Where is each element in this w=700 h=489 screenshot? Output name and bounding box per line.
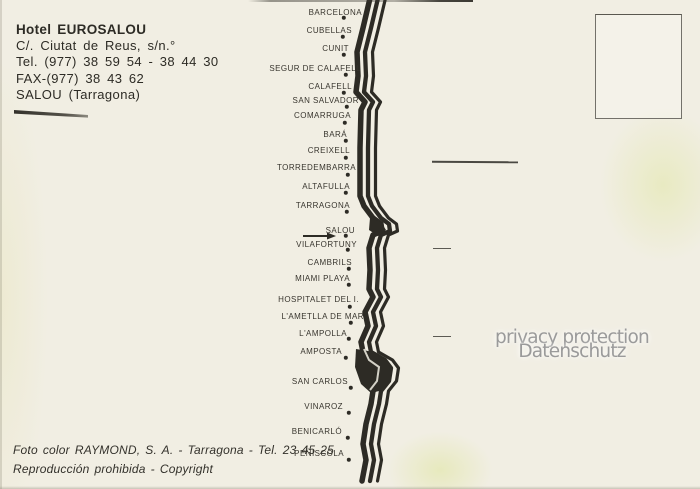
- map-town-dot: [341, 35, 345, 39]
- salou-cape-blob: [369, 218, 386, 236]
- address-line-2: [433, 248, 451, 249]
- photo-credit: Foto color RAYMOND, S. A. - Tarragona - …: [13, 441, 334, 460]
- map-town-dot: [344, 234, 348, 238]
- map-town-label: ALTAFULLA: [302, 183, 350, 191]
- map-town-label: BARÁ: [323, 131, 347, 139]
- map-town-dot: [343, 121, 347, 125]
- postcard-back: Hotel EUROSALOU C/. Ciutat de Reus, s/n.…: [0, 0, 700, 489]
- map-town-label: CREIXELL: [308, 147, 350, 155]
- hotel-info-block: Hotel EUROSALOU C/. Ciutat de Reus, s/n.…: [16, 21, 219, 104]
- delta-white-channel: [364, 349, 379, 390]
- map-town-dot: [344, 156, 348, 160]
- hotel-city: SALOU (Tarragona): [16, 87, 219, 103]
- map-town-dot: [348, 305, 352, 309]
- hotel-address: C/. Ciutat de Reus, s/n.°: [16, 38, 219, 54]
- address-line-1: [432, 161, 518, 163]
- map-town-dot: [344, 73, 348, 77]
- map-town-label: CAMBRILS: [308, 259, 353, 267]
- address-line-3: [433, 336, 451, 337]
- printer-credits: Foto color RAYMOND, S. A. - Tarragona - …: [13, 441, 334, 478]
- map-town-label: SEGUR DE CALAFELL: [269, 65, 361, 73]
- map-town-dot: [342, 53, 346, 57]
- map-town-label: CUBELLAS: [307, 27, 352, 35]
- map-town-label: SAN SALVADOR: [293, 97, 359, 105]
- copyright-notice: Reproducción prohibida - Copyright: [13, 460, 334, 479]
- map-town-label: HOSPITALET DEL I.: [278, 296, 359, 304]
- map-town-label: COMARRUGA: [294, 112, 351, 120]
- map-town-dot: [346, 173, 350, 177]
- map-town-dot: [342, 91, 346, 95]
- map-town-dot: [349, 386, 353, 390]
- map-town-dot: [344, 191, 348, 195]
- hotel-fax: FAX-(977) 38 43 62: [16, 71, 219, 87]
- map-town-dot: [347, 458, 351, 462]
- map-town-label: TARRAGONA: [296, 202, 350, 210]
- map-town-label: TORREDEMBARRA: [277, 164, 356, 172]
- privacy-watermark: privacy protection Datenschutz: [488, 331, 656, 358]
- scan-edge-left: [0, 0, 2, 489]
- map-town-label: CUNIT: [322, 45, 349, 53]
- coast-bands: [356, 0, 399, 481]
- map-town-dot: [346, 248, 350, 252]
- map-town-dot: [344, 356, 348, 360]
- stamp-box: [595, 14, 682, 119]
- map-town-dot: [342, 16, 346, 20]
- map-town-label: BENICARLÓ: [292, 428, 342, 436]
- scan-edge-top: [248, 0, 473, 2]
- map-town-label: L'AMPOLLA: [299, 330, 347, 338]
- map-town-label: CALAFELL: [308, 83, 352, 91]
- map-town-dot: [347, 337, 351, 341]
- coast-band-outer: [372, 0, 399, 481]
- coast-band-middle: [364, 0, 391, 481]
- map-town-label: SAN CARLOS: [292, 378, 348, 386]
- map-town-label: VINAROZ: [304, 403, 343, 411]
- map-town-dot: [349, 321, 353, 325]
- map-town-dot: [345, 105, 349, 109]
- map-town-dot: [347, 267, 351, 271]
- map-town-label: L'AMETLLA DE MAR: [281, 313, 364, 321]
- map-town-label: SALOU: [326, 227, 355, 235]
- map-town-label: MIAMI PLAYA: [295, 275, 350, 283]
- map-town-dot: [347, 411, 351, 415]
- hotel-phone: Tel. (977) 38 59 54 - 38 44 30: [16, 54, 219, 70]
- map-town-dot: [344, 139, 348, 143]
- map-town-label: BARCELONA: [309, 9, 362, 17]
- map-town-label: AMPOSTA: [300, 348, 342, 356]
- hotel-name: Hotel EUROSALOU: [16, 21, 219, 38]
- map-town-dot: [345, 210, 349, 214]
- map-town-dot: [346, 436, 350, 440]
- underline-pen-stroke: [14, 110, 88, 118]
- map-town-dot: [347, 283, 351, 287]
- ebro-delta-blob: [355, 349, 391, 393]
